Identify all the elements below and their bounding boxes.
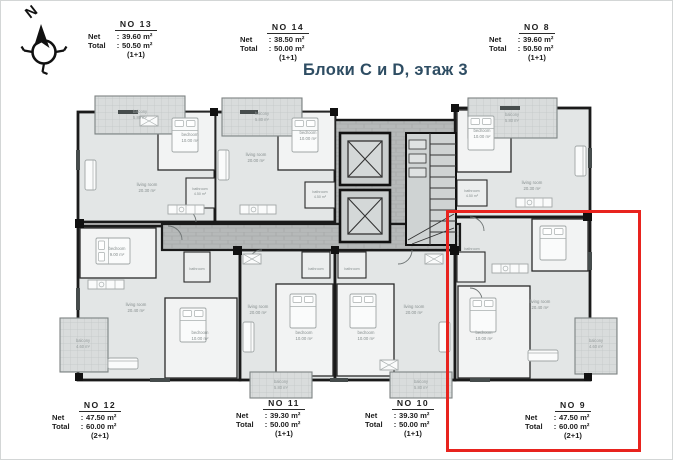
room-label: bedroom [476,330,493,335]
room-label: bedroom [358,330,375,335]
room-label: bedroom [192,330,209,335]
room-label: balcony [133,109,148,114]
room-area: 20.00 m² [406,310,424,315]
room-area: 20.40 m² [128,308,146,313]
room-label: balcony [274,379,289,384]
room-area: 10.00 m² [358,336,376,341]
staircase [406,133,456,245]
room-area: 10.00 m² [296,336,314,341]
room-label: balcony [505,112,520,117]
room-area: 5.80 m² [255,117,270,122]
room-label: bathroom [192,187,207,191]
room-area: 5.80 m² [274,385,289,390]
room-area: 5.80 m² [133,115,148,120]
room-area: 20.00 m² [248,158,266,163]
room-area: 20.30 m² [524,186,542,191]
room-label: bedroom [474,128,491,133]
room-label: balcony [589,338,604,343]
room-label: bedroom [182,132,199,137]
room-area: 10.00 m² [192,336,210,341]
room-area: 4.60 m² [76,344,91,349]
room-label: living room [126,302,147,307]
room-area: 10.00 m² [300,136,318,141]
room-area: 10.00 m² [476,336,494,341]
floorplan-page: N Блоки C и D, этаж 3 NO 13 Net:39.60 m²… [0,0,673,460]
room-label: living room [522,180,543,185]
room-label: bathroom [308,267,323,271]
room-area: 4.50 m² [466,194,479,198]
room-label: living room [248,304,269,309]
room-label: balcony [76,338,91,343]
room-area: 5.80 m² [414,385,429,390]
room-label: balcony [414,379,429,384]
room-area: 4.60 m² [589,344,604,349]
room-label: living room [137,182,158,187]
room-label: balcony [255,111,270,116]
room-label: bedroom [109,246,126,251]
room-label: living room [530,299,551,304]
room-label: bathroom [189,267,204,271]
room-area: 20.30 m² [139,188,157,193]
room-label: bathroom [464,247,479,251]
room-label: bathroom [344,267,359,271]
room-area: 20.40 m² [532,305,550,310]
room-label: living room [246,152,267,157]
room-area: 9.00 m² [110,252,125,257]
room-area: 10.00 m² [182,138,200,143]
room-label: living room [404,304,425,309]
room-area: 5.80 m² [505,118,520,123]
floor-plan: balcony 5.80 m² bedroom 10.00 m² living … [0,0,673,460]
room-label: bedroom [300,130,317,135]
room-area: 4.50 m² [314,195,327,199]
room-area: 10.00 m² [474,134,492,139]
room-label: bathroom [312,190,327,194]
room-label: bathroom [464,189,479,193]
room-area: 4.50 m² [194,192,207,196]
room-area: 20.00 m² [250,310,268,315]
room-label: bedroom [296,330,313,335]
